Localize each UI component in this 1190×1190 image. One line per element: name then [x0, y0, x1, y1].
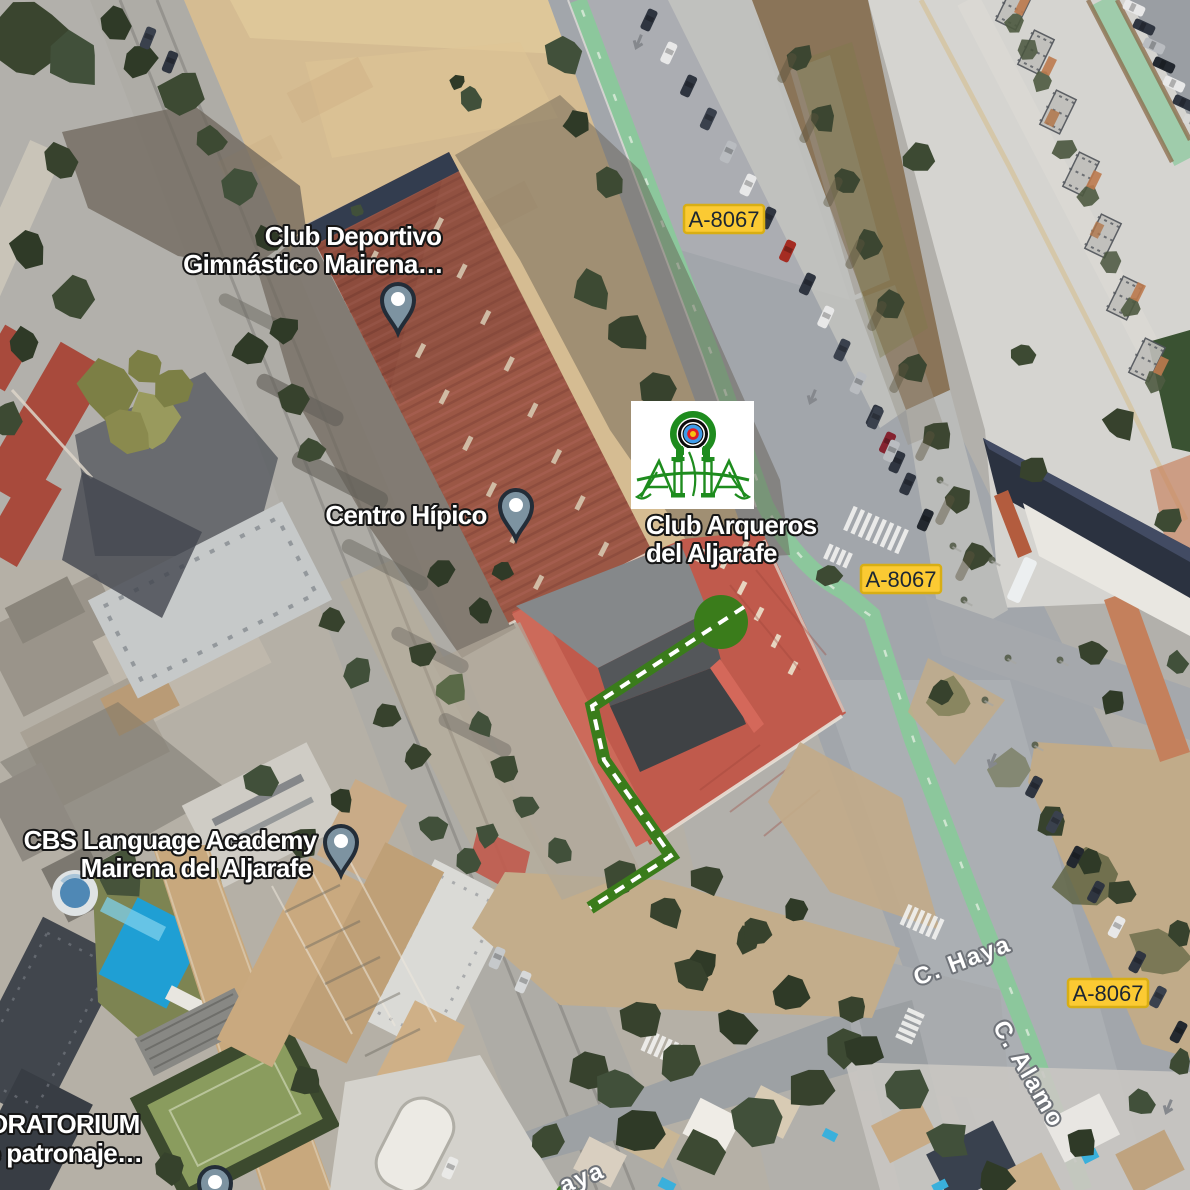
svg-text:Club Deportivo: Club Deportivo	[265, 221, 442, 251]
svg-text:del Aljarafe: del Aljarafe	[646, 538, 777, 568]
svg-text:A-8067: A-8067	[1073, 981, 1144, 1006]
svg-text:Centro Hípico: Centro Hípico	[325, 500, 486, 530]
svg-text:A-8067: A-8067	[866, 567, 937, 592]
svg-text:e patronaje…: e patronaje…	[0, 1138, 142, 1168]
svg-text:CBS Language Academy: CBS Language Academy	[24, 825, 318, 855]
svg-text:Mairena del Aljarafe: Mairena del Aljarafe	[81, 853, 312, 883]
svg-text:A-8067: A-8067	[689, 207, 760, 232]
svg-text:ORATORIUM: ORATORIUM	[0, 1109, 140, 1139]
svg-text:Club Arqueros: Club Arqueros	[646, 510, 817, 540]
svg-text:Gimnástico Mairena…: Gimnástico Mairena…	[183, 249, 443, 279]
